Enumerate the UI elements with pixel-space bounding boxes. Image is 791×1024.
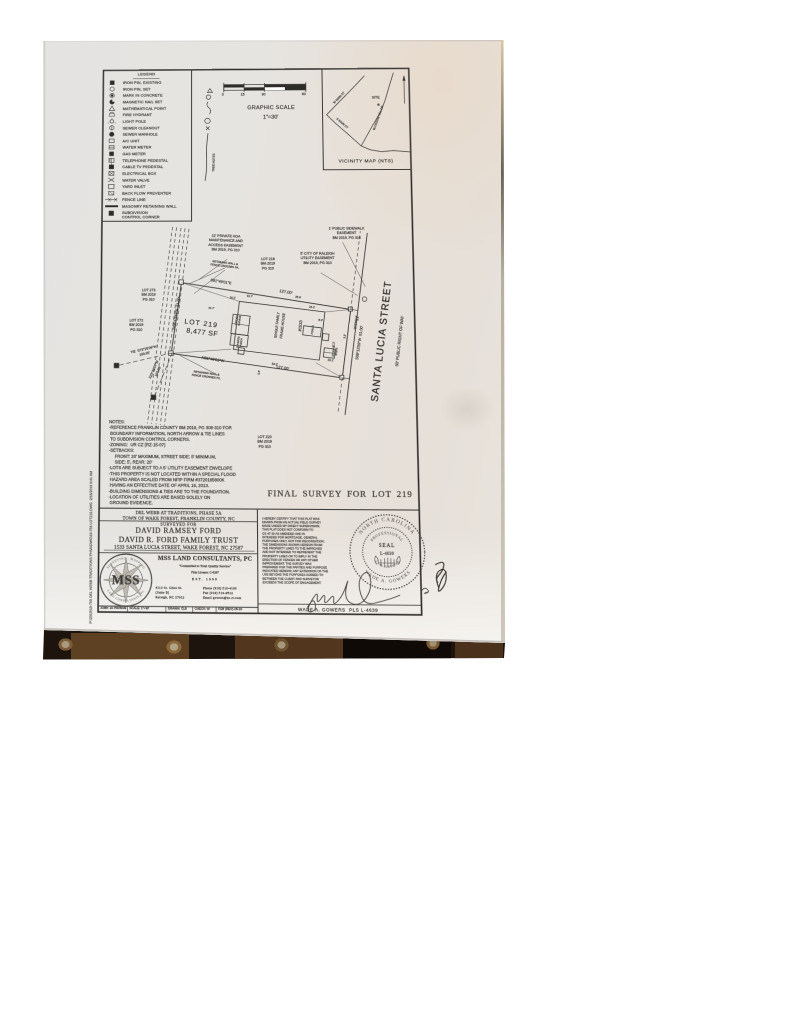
svg-text:SURVEYING · MAPPING: SURVEYING · MAPPING	[106, 556, 147, 570]
svg-text:LAND SURVEYOR: LAND SURVEYOR	[374, 560, 401, 569]
svg-text:PROFESSIONAL: PROFESSIONAL	[370, 531, 405, 543]
svg-text:WADE A. GOWERS: WADE A. GOWERS	[364, 569, 412, 584]
svg-text:LAND CONSULTANTS, PC: LAND CONSULTANTS, PC	[106, 589, 145, 603]
